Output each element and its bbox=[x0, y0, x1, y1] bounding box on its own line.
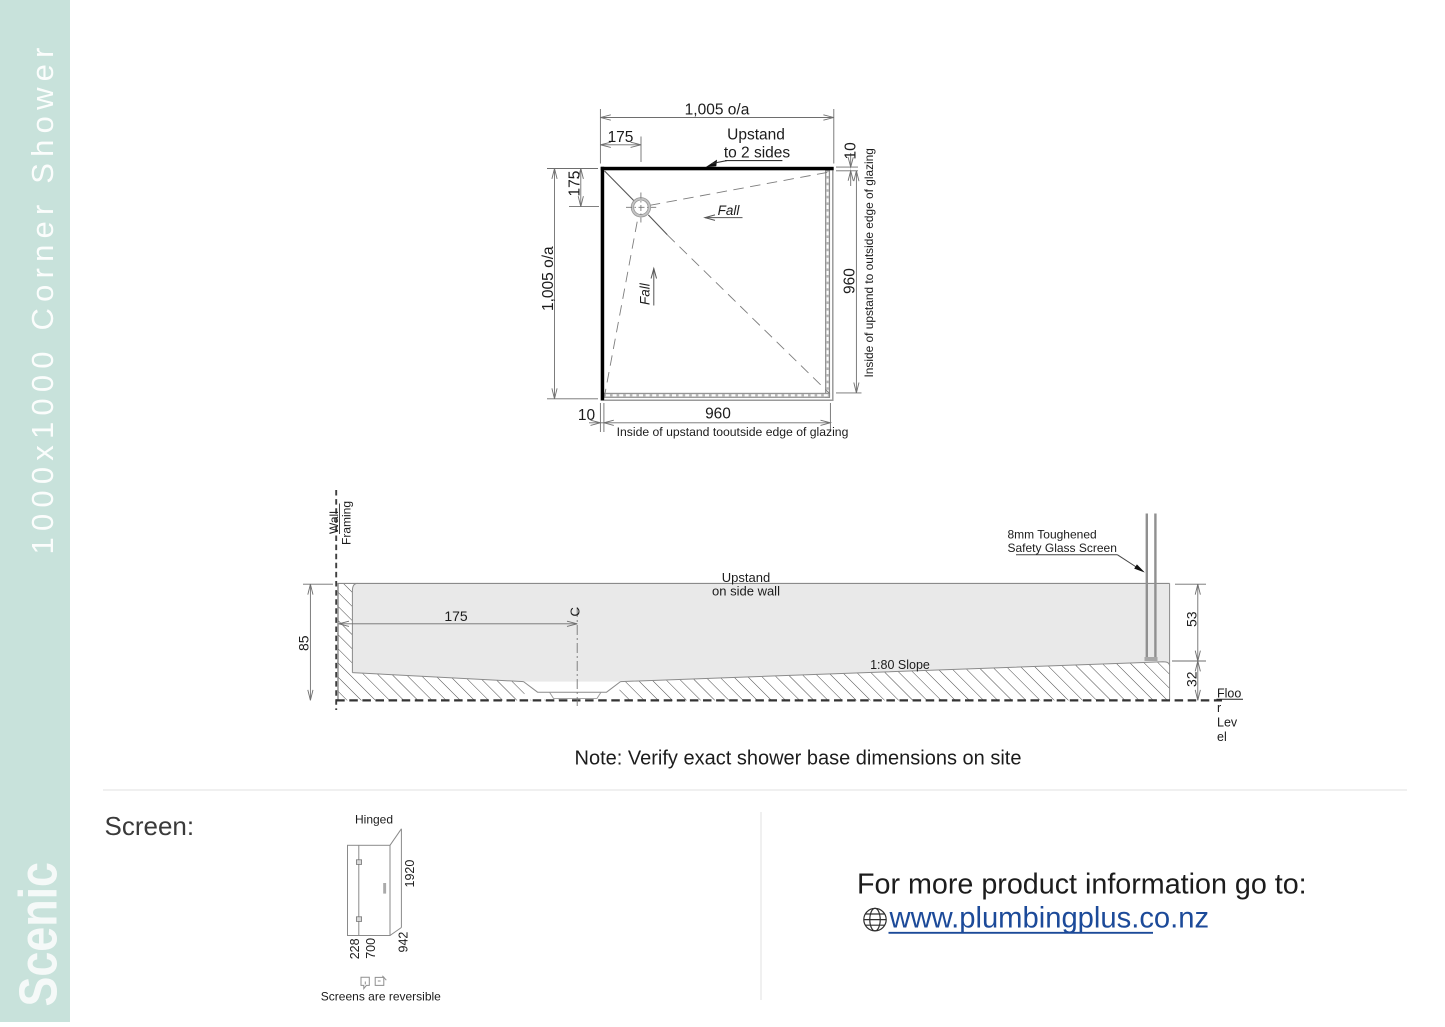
svg-text:Inside of upstand to outside e: Inside of upstand to outside edge of gla… bbox=[862, 148, 876, 377]
svg-text:For more product information g: For more product information go to: bbox=[857, 869, 1307, 901]
svg-text:Screens are reversible: Screens are reversible bbox=[321, 990, 441, 1004]
svg-text:10: 10 bbox=[578, 407, 596, 424]
svg-text:Lev: Lev bbox=[1217, 716, 1238, 730]
svg-text:32: 32 bbox=[1184, 671, 1200, 687]
svg-text:Scenic: Scenic bbox=[8, 862, 69, 1006]
svg-text:175: 175 bbox=[567, 171, 584, 197]
svg-text:8mm Toughened: 8mm Toughened bbox=[1008, 528, 1097, 542]
svg-text:Framing: Framing bbox=[340, 501, 354, 545]
svg-text:175: 175 bbox=[444, 608, 468, 624]
svg-text:Screen:: Screen: bbox=[105, 811, 195, 841]
svg-text:r: r bbox=[1217, 701, 1221, 715]
svg-text:Inside of upstand tooutside ed: Inside of upstand tooutside edge of glaz… bbox=[617, 425, 849, 439]
svg-text:175: 175 bbox=[608, 129, 634, 146]
svg-text:1000x1000 Corner Shower: 1000x1000 Corner Shower bbox=[25, 41, 60, 554]
svg-text:C: C bbox=[568, 607, 583, 616]
svg-text:Fall: Fall bbox=[638, 282, 653, 305]
svg-text:to 2 sides: to 2 sides bbox=[724, 145, 791, 162]
svg-text:Fall: Fall bbox=[718, 203, 741, 218]
svg-text:53: 53 bbox=[1184, 611, 1200, 627]
svg-text:960: 960 bbox=[842, 268, 859, 294]
svg-text:www.plumbingplus.co.nz: www.plumbingplus.co.nz bbox=[889, 902, 1210, 934]
svg-text:960: 960 bbox=[705, 405, 731, 422]
svg-text:Safety Glass Screen: Safety Glass Screen bbox=[1008, 541, 1117, 555]
svg-text:1,005 o/a: 1,005 o/a bbox=[685, 101, 750, 118]
svg-text:1920: 1920 bbox=[403, 860, 417, 888]
svg-text:el: el bbox=[1217, 730, 1227, 744]
svg-text:Hinged: Hinged bbox=[355, 812, 393, 826]
svg-text:Floo: Floo bbox=[1217, 687, 1241, 701]
svg-text:1:80 Slope: 1:80 Slope bbox=[870, 658, 930, 672]
svg-text:10: 10 bbox=[842, 142, 859, 160]
svg-text:1,005 o/a: 1,005 o/a bbox=[540, 246, 557, 311]
svg-text:700: 700 bbox=[364, 938, 378, 959]
svg-text:228: 228 bbox=[348, 938, 362, 959]
svg-text:942: 942 bbox=[396, 932, 410, 953]
svg-text:Upstand: Upstand bbox=[727, 127, 785, 144]
svg-text:on side wall: on side wall bbox=[712, 584, 780, 599]
svg-text:Note: Verify exact shower base: Note: Verify exact shower base dimension… bbox=[575, 748, 1022, 770]
svg-text:85: 85 bbox=[296, 635, 312, 651]
